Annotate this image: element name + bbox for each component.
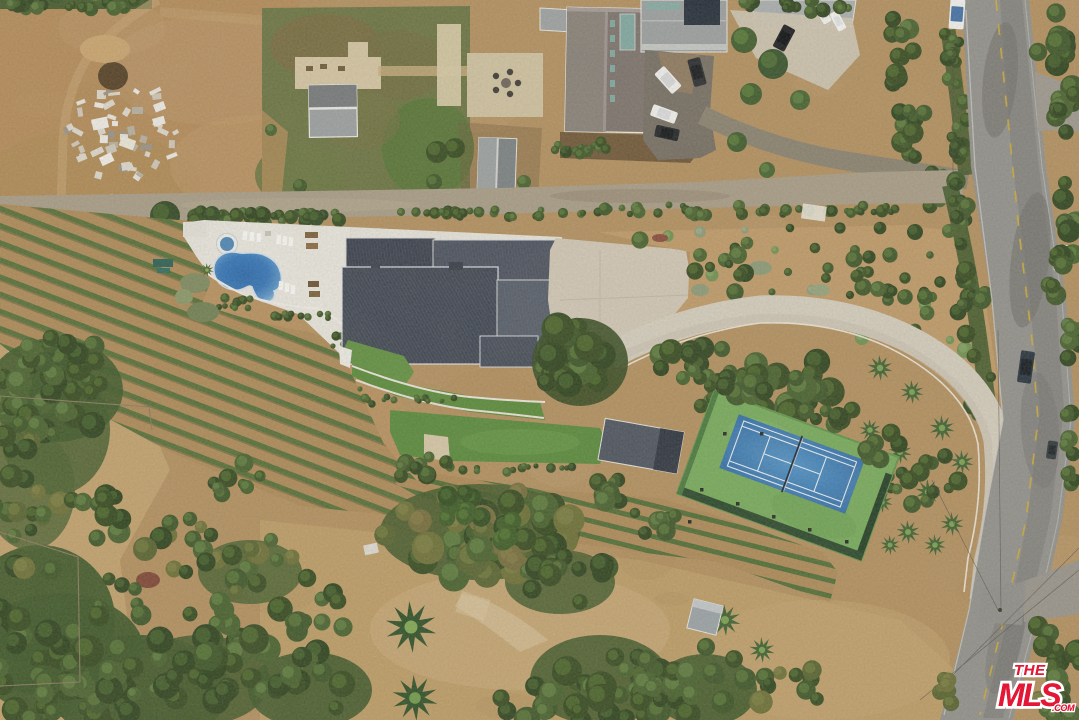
svg-text:.COM: .COM <box>1052 703 1075 713</box>
